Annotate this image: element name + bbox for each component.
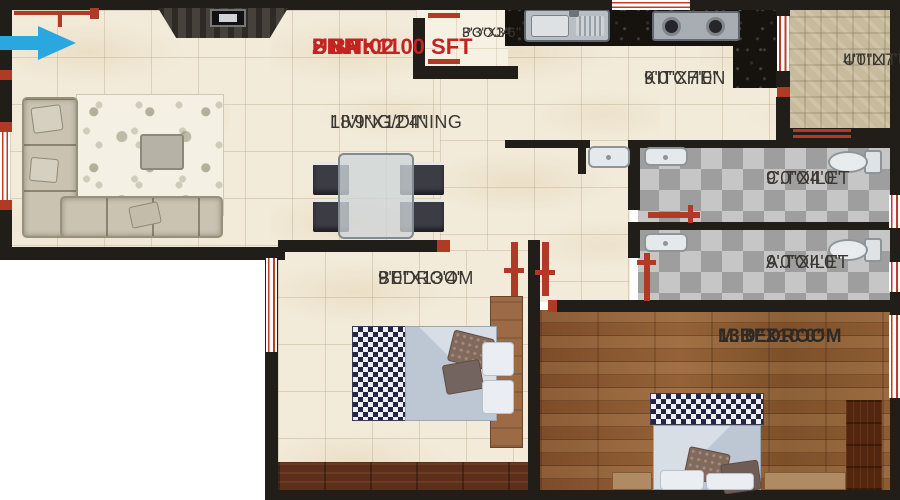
wall-kitchen-bottom: [505, 140, 590, 148]
bedroom-bed-throw: [352, 326, 406, 421]
floor-plan: UNIT 02 SBA : 1100 SFT 2 BHK LIVING/DINI…: [0, 0, 900, 500]
master-bench-right: [764, 472, 846, 490]
master-door-frame: [542, 242, 549, 296]
entry-arrow-icon: [38, 26, 76, 60]
room-dims: 9'0"X4'0": [766, 252, 841, 273]
a-toilet-door-leaf: [637, 260, 656, 265]
wall-toilet-divider: [628, 222, 890, 230]
a-toilet-basin-icon: [644, 233, 688, 252]
wall-pooja-bottom: [413, 66, 518, 79]
window-c-toilet: [889, 195, 900, 228]
utility-door-jamb: [777, 87, 790, 97]
jamb-left-window-top: [0, 122, 12, 132]
master-door-frame-tick: [535, 270, 555, 275]
burner-right: [706, 17, 725, 36]
main-door-jamb: [90, 8, 99, 19]
sofa-pillow-2: [29, 157, 59, 183]
master-bed-headboard-throw: [650, 393, 764, 425]
window-living-left: [0, 132, 10, 200]
basin-drain: [663, 155, 668, 160]
jamb-left-wall-upper: [0, 70, 12, 80]
room-dims: 9'0"X4'0": [766, 168, 841, 189]
bedroom-pillow-white-1: [482, 342, 514, 376]
master-pillow-white-2: [706, 473, 754, 490]
master-bench-left: [612, 472, 652, 490]
master-wardrobe: [846, 400, 882, 490]
wall-master-top: [556, 300, 890, 312]
kitchen-sink-icon: [524, 9, 610, 42]
sink-bowl: [531, 15, 569, 37]
sink-drainboard: [576, 16, 604, 36]
bedroom-pillow-white-2: [482, 380, 514, 414]
window-kitchen-top: [612, 0, 690, 10]
bedroom-door-frame-tick: [504, 268, 524, 273]
room-dims: 13'0"X10'0": [718, 326, 826, 348]
room-dims: 9'0"X13'4": [378, 268, 464, 289]
unit-bhk: 2 BHK: [312, 34, 378, 59]
wall-kitchen-utility-b: [776, 71, 790, 87]
c-toilet-door-leaf: [688, 205, 693, 223]
burner-left: [662, 17, 681, 36]
sofa-pillow-1: [30, 104, 63, 134]
wall-bottom: [265, 490, 900, 500]
master-pillow-white-1: [660, 470, 704, 490]
pooja-door-swing-top: [428, 13, 460, 18]
c-toilet-basin-icon: [644, 147, 688, 166]
bedroom-sitout-deck: [278, 462, 528, 492]
window-master-right: [889, 315, 900, 398]
main-door-swing: [14, 11, 96, 15]
wall-bedroom-top: [278, 240, 438, 252]
room-dims: 3'3"X3'6": [462, 24, 521, 40]
sink-faucet: [569, 9, 579, 17]
basin-drain: [663, 241, 668, 246]
kitchen-counter-return: [733, 44, 779, 88]
wall-top: [0, 0, 900, 10]
bedroom-door-jamb: [437, 240, 450, 252]
wall-kitchen-utility-a: [776, 0, 790, 16]
wall-corridor-vertical: [528, 240, 540, 500]
room-dims: 4'0"X7'6": [843, 50, 900, 70]
window-a-toilet: [889, 262, 900, 292]
wall-right: [890, 0, 900, 500]
utility-door-swing-b: [793, 135, 851, 138]
master-door-jamb: [548, 300, 557, 312]
wall-toilets-left-mid: [628, 226, 640, 258]
wall-basin-nook: [578, 148, 586, 174]
window-bedroom-left: [266, 258, 277, 352]
room-dims: 9'0"X7'0": [644, 68, 719, 89]
dining-table: [338, 153, 414, 239]
tv-icon: [210, 9, 246, 27]
wall-living-bottom: [0, 247, 285, 260]
coffee-table: [140, 134, 184, 170]
stove-hob-icon: [652, 11, 740, 41]
jamb-left-window-bottom: [0, 200, 12, 210]
pooja-door-swing-bottom: [428, 59, 460, 64]
main-door-leaf: [58, 11, 62, 27]
room-dims: 18'9"X12'4": [330, 112, 426, 133]
utility-floor: [788, 10, 890, 130]
utility-door-swing-a: [793, 129, 851, 132]
window-kitchen-utility: [777, 16, 789, 71]
entry-arrow-tail: [0, 36, 38, 50]
basin-drain: [606, 155, 611, 160]
corridor-washbasin-icon: [588, 146, 630, 168]
tv-screen: [219, 14, 237, 22]
